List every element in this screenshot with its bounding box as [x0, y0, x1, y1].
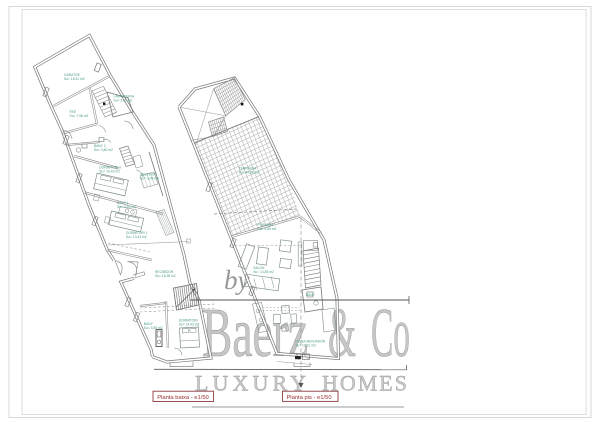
svg-text:Su= 44,86 m2: Su= 44,86 m2 [239, 171, 260, 175]
svg-text:Su= 4,25 m2: Su= 4,25 m2 [117, 205, 136, 209]
svg-text:Baerz: Baerz [202, 295, 308, 372]
svg-text:Su= 7,96 m2: Su= 7,96 m2 [70, 114, 89, 118]
svg-text:by: by [224, 265, 250, 295]
svg-text:Su= 14,43 m2: Su= 14,43 m2 [179, 323, 200, 327]
svg-text:Su= 3,80 m2: Su= 3,80 m2 [94, 148, 113, 152]
svg-text:Su= 13,43 m2: Su= 13,43 m2 [126, 235, 147, 239]
svg-text:BANY: BANY [306, 293, 316, 297]
svg-text:Planta baixa - e1/50: Planta baixa - e1/50 [157, 395, 209, 401]
svg-text:Co: Co [371, 295, 410, 372]
svg-text:Su= 3,05 m2: Su= 3,05 m2 [140, 177, 159, 181]
svg-text:Su= 12,21 m2: Su= 12,21 m2 [295, 344, 316, 348]
svg-text:Su= 10,43 m2: Su= 10,43 m2 [99, 170, 120, 174]
svg-text:Su= 3,85 m2: Su= 3,85 m2 [144, 326, 163, 330]
svg-text:Planta pis - e1/50: Planta pis - e1/50 [286, 395, 331, 401]
svg-text:Su= 14,85 m2: Su= 14,85 m2 [253, 270, 274, 274]
svg-text:Su= 3,05 m2: Su= 3,05 m2 [114, 99, 133, 103]
svg-text:Su= 18,51 m2: Su= 18,51 m2 [64, 77, 85, 81]
svg-text:&: & [328, 295, 356, 372]
svg-text:Su= 16,38 m2: Su= 16,38 m2 [155, 274, 176, 278]
svg-text:Su= 9,85 m2: Su= 9,85 m2 [258, 227, 277, 231]
